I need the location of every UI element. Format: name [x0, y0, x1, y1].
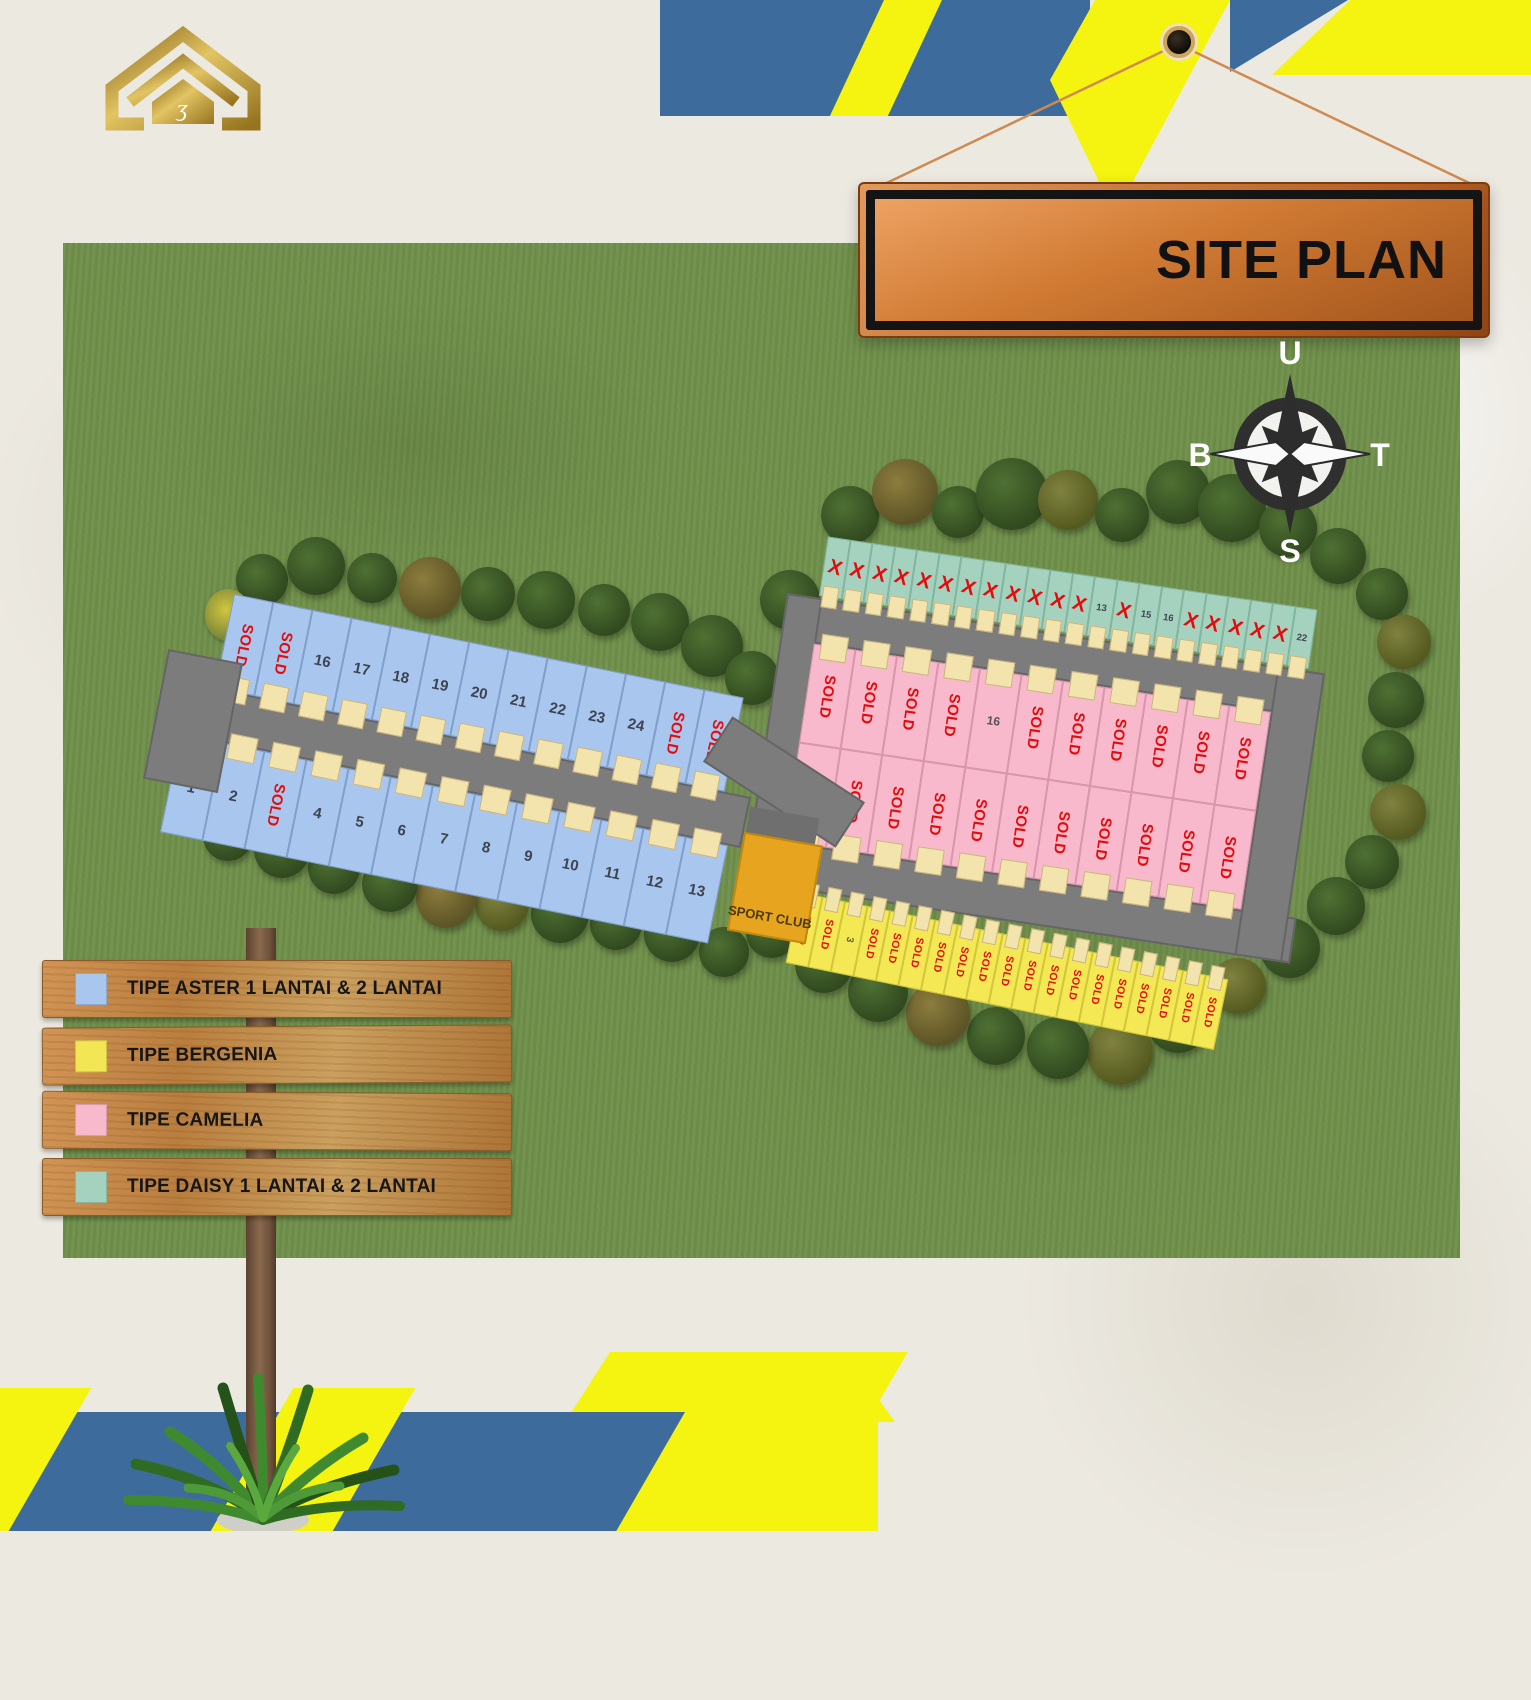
sign-face: SITE PLAN — [875, 199, 1473, 321]
lot-sold-label: SOLD — [930, 941, 948, 974]
lot-number: 22 — [548, 699, 568, 719]
lot-number: 17 — [352, 659, 372, 679]
lot-sold-label: SOLD — [1201, 996, 1219, 1029]
lot-sold-label: SOLD — [899, 686, 922, 732]
tree-icon — [1362, 730, 1414, 782]
lot-x-mark: X — [1181, 608, 1201, 634]
lot-sold-label: SOLD — [1148, 723, 1171, 769]
legend-label: TIPE CAMELIA — [127, 1109, 264, 1132]
tree-icon — [517, 571, 575, 629]
lot-number: 18 — [391, 667, 411, 687]
lot-number: 11 — [603, 863, 622, 883]
lot-number: 10 — [561, 854, 581, 874]
tree-icon — [1345, 835, 1399, 889]
lot-sold-label: SOLD — [1156, 987, 1174, 1020]
tree-icon — [1356, 568, 1408, 620]
gold-house-logo-icon: ʒ — [88, 18, 278, 140]
tree-icon — [1370, 784, 1426, 840]
compass-rose: U T S B — [1190, 338, 1390, 564]
lot-sold-label: SOLD — [1178, 991, 1196, 1024]
legend: TIPE ASTER 1 LANTAI & 2 LANTAITIPE BERGE… — [42, 960, 512, 1216]
tree-icon — [976, 458, 1048, 530]
lot-x-mark: X — [1270, 621, 1290, 647]
lot-x-mark: X — [1047, 588, 1067, 614]
legend-label: TIPE BERGENIA — [127, 1044, 278, 1067]
lot-sold-label: SOLD — [884, 785, 907, 831]
sign-frame: SITE PLAN — [866, 190, 1482, 330]
legend-color-chip — [75, 1171, 107, 1203]
lot-x-mark: X — [891, 565, 911, 591]
lot-sold-label: SOLD — [1106, 717, 1129, 763]
lot-x-mark: X — [869, 561, 889, 587]
lot-sold-label: SOLD — [925, 791, 948, 837]
lot-x-mark: X — [847, 558, 867, 584]
lot-sold-label: SOLD — [908, 936, 926, 969]
lot-number: 4 — [312, 804, 324, 822]
lot-number: 13 — [1096, 601, 1108, 613]
lot-x-mark: X — [936, 571, 956, 597]
tree-icon — [1377, 615, 1431, 669]
tree-icon — [461, 567, 515, 621]
lot-x-mark: X — [914, 568, 934, 594]
lot-sold-label: SOLD — [1043, 964, 1061, 997]
lot-number: 2 — [228, 787, 240, 805]
lot-sold-label: SOLD — [1133, 822, 1156, 868]
legend-color-chip — [75, 973, 107, 1005]
legend-label: TIPE DAISY 1 LANTAI & 2 LANTAI — [127, 1176, 436, 1198]
lot-sold-label: SOLD — [663, 710, 688, 756]
lot-number: 21 — [509, 691, 529, 711]
lot-sold-label: SOLD — [1065, 711, 1088, 757]
lot-sold-label: SOLD — [1133, 982, 1151, 1015]
sport-club-label: SPORT CLUB — [727, 903, 813, 932]
site-plan-sign: SITE PLAN — [858, 182, 1490, 338]
sport-club: SPORT CLUB — [727, 832, 823, 944]
legend-plank: TIPE ASTER 1 LANTAI & 2 LANTAI — [42, 960, 512, 1018]
lot-x-mark: X — [1225, 615, 1245, 641]
lot-number: 5 — [354, 812, 366, 830]
plant — [118, 1360, 408, 1531]
tree-icon — [1038, 470, 1098, 530]
tree-icon — [872, 459, 938, 525]
tree-icon — [1368, 672, 1424, 728]
lot-x-mark: X — [1069, 591, 1089, 617]
legend-color-chip — [75, 1040, 107, 1072]
legend-plank: TIPE DAISY 1 LANTAI & 2 LANTAI — [42, 1158, 512, 1216]
lot-sold-label: SOLD — [967, 797, 990, 843]
compass-west-label: B — [1190, 437, 1212, 473]
lot-sold-label: SOLD — [857, 679, 880, 725]
lot-sold-label: SOLD — [885, 932, 903, 965]
lot-sold-label: SOLD — [271, 630, 296, 676]
lot-sold-label: SOLD — [1023, 704, 1046, 750]
lot-sold-label: SOLD — [816, 673, 839, 719]
lot-x-mark: X — [1203, 611, 1223, 637]
lot-number: 23 — [587, 707, 607, 727]
lot-sold-label: SOLD — [1088, 973, 1106, 1006]
lot-sold-label: SOLD — [953, 945, 971, 978]
lot-number: 15 — [1140, 608, 1152, 620]
bottom-yellow-rect — [754, 1400, 878, 1531]
lot-number: 8 — [480, 838, 492, 856]
lot-sold-label: SOLD — [998, 955, 1016, 988]
site-plan-poster: { "branding": { "logo_icon": "gold-house… — [0, 0, 1531, 1531]
lot-number: 13 — [687, 880, 707, 900]
lot-sold-label: SOLD — [975, 950, 993, 983]
top-yellow-stripe — [823, 0, 946, 116]
lot-number: 20 — [469, 683, 489, 703]
lot-number: 19 — [430, 675, 450, 695]
lot-sold-label: SOLD — [1009, 803, 1032, 849]
compass-north-label: U — [1278, 338, 1301, 371]
lot-x-mark: X — [825, 555, 845, 581]
compass-south-label: S — [1279, 533, 1300, 564]
tree-icon — [821, 486, 879, 544]
lot-x-mark: X — [1247, 618, 1267, 644]
compass-east-label: T — [1370, 437, 1390, 473]
lot-x-mark: X — [1003, 581, 1023, 607]
tree-icon — [1095, 488, 1149, 542]
lot-sold-label: SOLD — [1111, 978, 1129, 1011]
lot-number: 16 — [986, 713, 1001, 729]
tree-icon — [399, 557, 461, 619]
tree-icon — [347, 553, 397, 603]
lot-number: 16 — [313, 651, 333, 671]
lot-number: 22 — [1296, 631, 1308, 643]
lot-number: 7 — [438, 830, 450, 848]
lot-sold-label: SOLD — [1231, 735, 1254, 781]
lot-sold-label: SOLD — [863, 927, 881, 960]
tree-icon — [287, 537, 345, 595]
lot-x-mark: X — [1025, 585, 1045, 611]
lot-sold-label: SOLD — [1216, 834, 1239, 880]
lot-x-mark: X — [958, 575, 978, 601]
nail-icon — [1163, 26, 1195, 58]
lot-sold-label: SOLD — [940, 692, 963, 738]
top-blue-band — [660, 0, 1090, 116]
lot-number: 9 — [523, 847, 535, 865]
tree-icon — [578, 584, 630, 636]
lot-sold-label: SOLD — [1020, 959, 1038, 992]
lot-number: 3 — [843, 935, 855, 943]
page-title: SITE PLAN — [1156, 229, 1447, 291]
lot-sold-label: SOLD — [1066, 968, 1084, 1001]
lot-number: 12 — [645, 872, 665, 892]
lot-number: 16 — [1162, 611, 1174, 623]
legend-plank: TIPE CAMELIA — [42, 1091, 512, 1151]
svg-text:ʒ: ʒ — [175, 96, 188, 122]
lot-sold-label: SOLD — [818, 918, 836, 951]
lot-sold-label: SOLD — [1175, 828, 1198, 874]
legend-label: TIPE ASTER 1 LANTAI & 2 LANTAI — [127, 978, 442, 1000]
legend-plank: TIPE BERGENIA — [42, 1024, 512, 1085]
lot-sold-label: SOLD — [1190, 729, 1213, 775]
lot-sold-label: SOLD — [1050, 809, 1073, 855]
lot-number: 6 — [396, 821, 408, 839]
legend-color-chip — [75, 1104, 107, 1136]
lot-number: 24 — [626, 715, 646, 735]
lot-x-mark: X — [1114, 598, 1134, 624]
lot-sold-label: SOLD — [1092, 816, 1115, 862]
lot-x-mark: X — [980, 578, 1000, 604]
lot-sold-label: SOLD — [263, 781, 288, 827]
